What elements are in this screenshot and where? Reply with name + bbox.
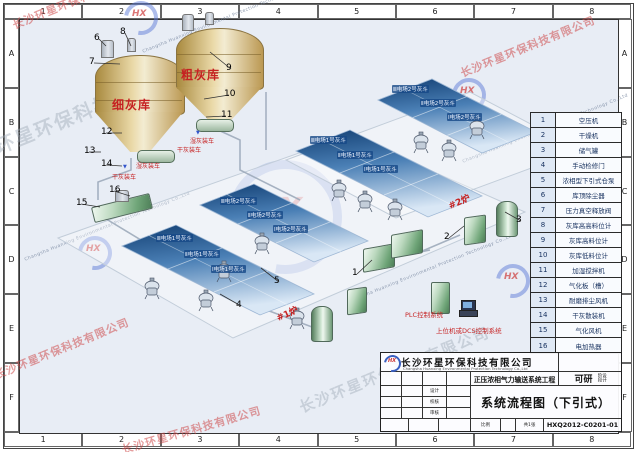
engineering-drawing-sheet: 12345678 12345678 ABCDEF ABCDEF 长沙环星环保科技… xyxy=(0,0,637,452)
callout-leader-lines xyxy=(0,0,637,452)
